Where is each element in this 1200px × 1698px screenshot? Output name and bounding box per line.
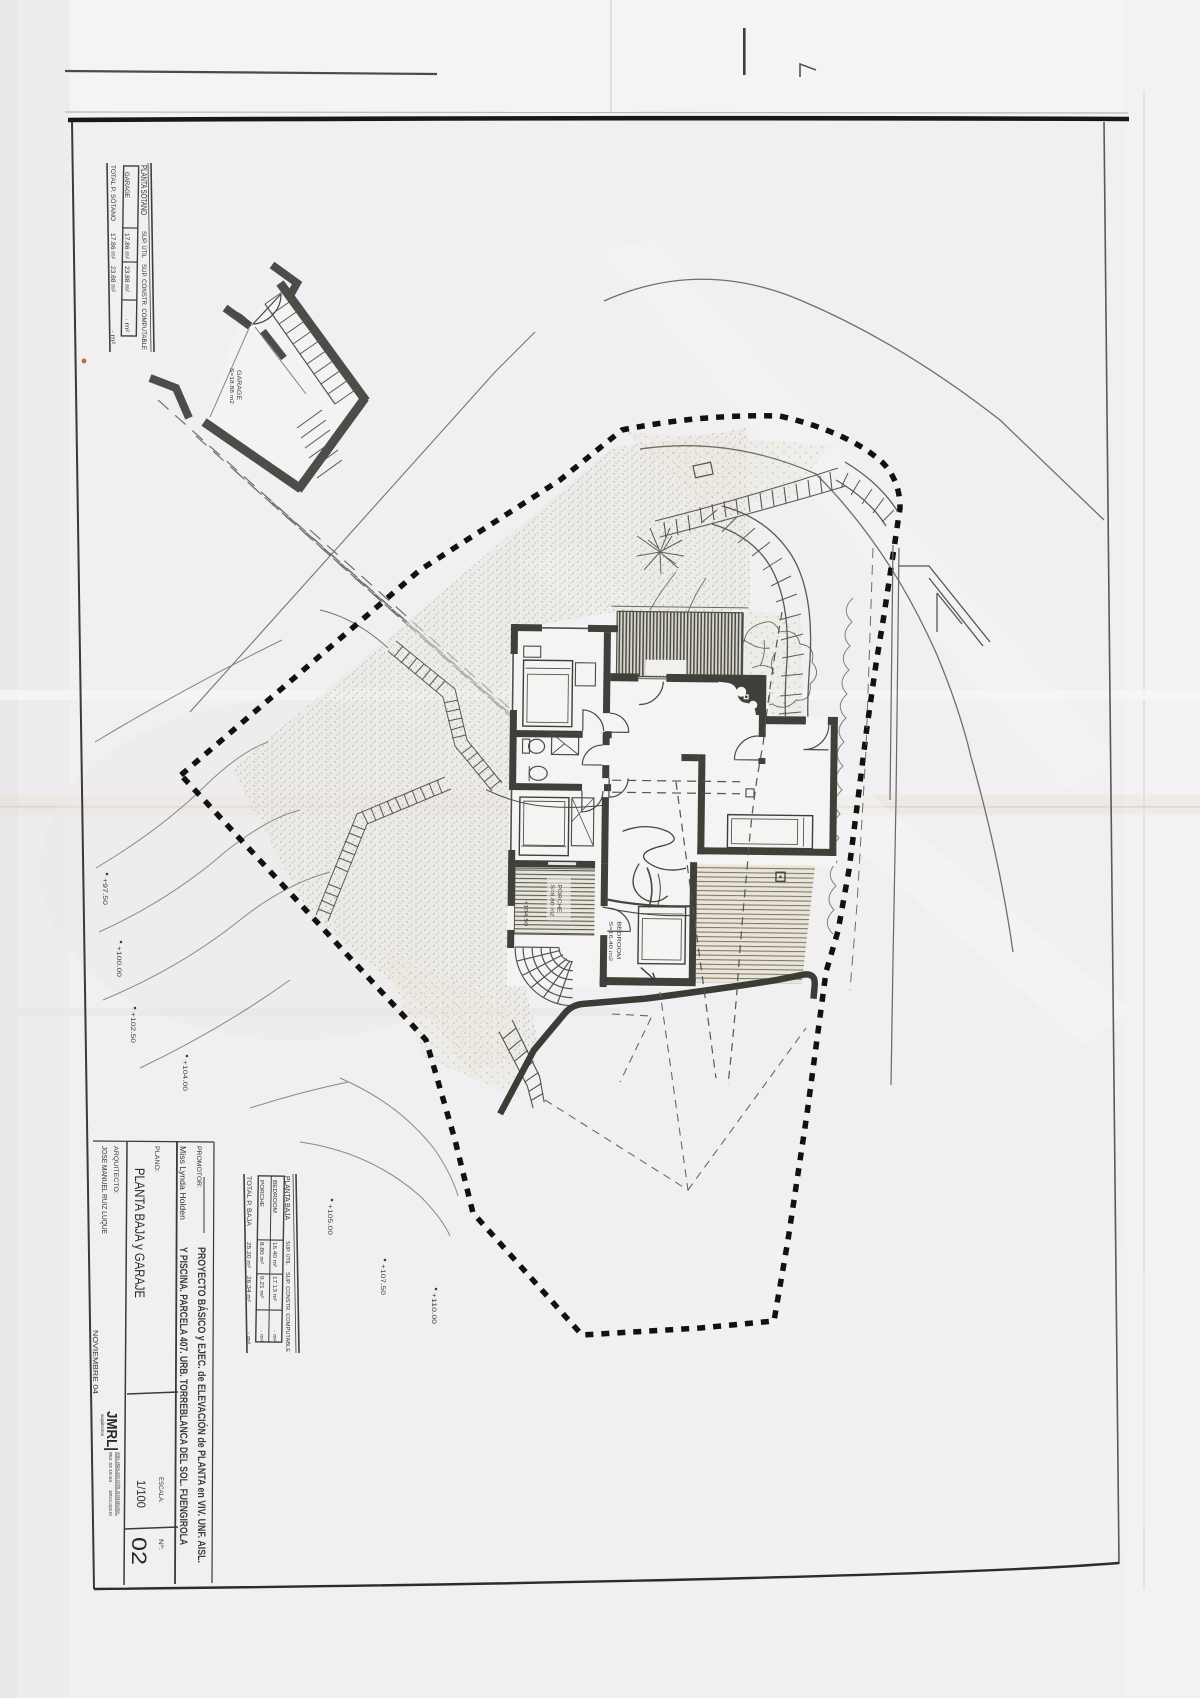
svg-text:SUP. ÚTIL: SUP. ÚTIL [284,1241,291,1265]
svg-text:· m²: · m² [109,330,115,344]
svg-text:23.88 m²: 23.88 m² [109,266,115,292]
svg-text:Y PISCINA. PARCELA 407. URB. T: Y PISCINA. PARCELA 407. URB. TORREBLANCA… [177,1247,189,1545]
svg-text:23.88 m²: 23.88 m² [123,266,129,292]
svg-text:TOTAL P. SÓTANO: TOTAL P. SÓTANO [109,165,118,221]
svg-text:JOSE MANUEL RUIZ LUQUE: JOSE MANUEL RUIZ LUQUE [100,1146,107,1234]
svg-text:952 33 18 63: 952 33 18 63 [108,1452,113,1483]
svg-text:+102.50: +102.50 [129,1012,136,1043]
svg-text:TOTAL P. BAJA: TOTAL P. BAJA [245,1176,251,1226]
svg-text:GARAGE: GARAGE [123,172,130,198]
svg-text:1/100: 1/100 [134,1480,148,1508]
svg-text:17.86 m²: 17.86 m² [123,233,129,259]
svg-text:PLANTA BAJA: PLANTA BAJA [283,1176,292,1220]
svg-text:+110.00: +110.00 [430,1293,437,1325]
svg-text:ARQUITECTO:: ARQUITECTO: [112,1146,119,1194]
svg-text:S=18.88 m2: S=18.88 m2 [228,368,234,404]
svg-text:+107.50: +107.50 [379,1264,386,1295]
svg-text:9.21 m²: 9.21 m² [258,1276,264,1298]
svg-text:8.80 m²: 8.80 m² [258,1242,264,1264]
svg-text:+100.00: +100.00 [115,946,122,977]
svg-text:S=16.40 m2: S=16.40 m2 [607,921,613,961]
svg-text:· m²: · m² [245,1332,251,1344]
svg-text:PORCHE: PORCHE [556,885,562,913]
svg-text:BEDROOM: BEDROOM [615,921,621,960]
svg-text:PLANTA SÓTANO: PLANTA SÓTANO [139,165,149,215]
svg-text:BEDROOM: BEDROOM [271,1180,277,1213]
svg-text:26.34 m²: 26.34 m² [245,1276,251,1302]
svg-text:SUP. ÚTIL: SUP. ÚTIL [140,231,147,259]
svg-text:PORCHE: PORCHE [258,1180,264,1207]
svg-text:· m²: · m² [258,1330,264,1342]
svg-text:AVDA. ANDALUCIA 23 5ºB. 29 006: AVDA. ANDALUCIA 23 5ºB. 29 006 MALAGA [116,1452,121,1514]
svg-text:GARAGE: GARAGE [235,370,242,401]
svg-text:25.20 m²: 25.20 m² [245,1242,251,1268]
svg-text:S=8.80 m2: S=8.80 m2 [548,884,554,916]
svg-text:+104.50: +104.50 [522,900,528,926]
svg-text:arquitectos: arquitectos [100,1414,105,1436]
svg-text:+104.00: +104.00 [181,1060,188,1091]
svg-text:+105.00: +105.00 [326,1204,333,1235]
svg-text:PLANTA BAJA y GARAJE: PLANTA BAJA y GARAJE [132,1168,147,1298]
svg-text:17.86 m²: 17.86 m² [109,233,115,259]
svg-text:Miss Lynda Holden: Miss Lynda Holden [178,1146,188,1220]
svg-text:PLANO:: PLANO: [153,1146,160,1172]
svg-text:+97.50: +97.50 [101,878,108,906]
svg-text:NOVIEMBRE 04: NOVIEMBRE 04 [91,1330,98,1394]
svg-text:PROYECTO BÁSICO y EJEC. de ELE: PROYECTO BÁSICO y EJEC. de ELEVACIÓN de … [195,1247,208,1563]
svg-text:SUP. CONSTR. COMPUTABLE: SUP. CONSTR. COMPUTABLE [140,264,146,350]
svg-text:JMRUIZLUQUE.ES: JMRUIZLUQUE.ES [108,1490,113,1516]
svg-text:PROMOTOR:: PROMOTOR: [195,1146,202,1188]
svg-text:Nº:: Nº: [157,1539,164,1550]
svg-text:17.13 m²: 17.13 m² [271,1276,277,1301]
svg-text:SUP. CONSTR. COMPUTABLE: SUP. CONSTR. COMPUTABLE [284,1272,290,1352]
svg-text:02: 02 [127,1537,150,1565]
svg-text:· m²: · m² [123,318,129,332]
svg-text:· m²: · m² [271,1330,277,1342]
svg-text:ESCALA:: ESCALA: [157,1477,164,1503]
svg-text:16.40 m²: 16.40 m² [271,1242,277,1267]
